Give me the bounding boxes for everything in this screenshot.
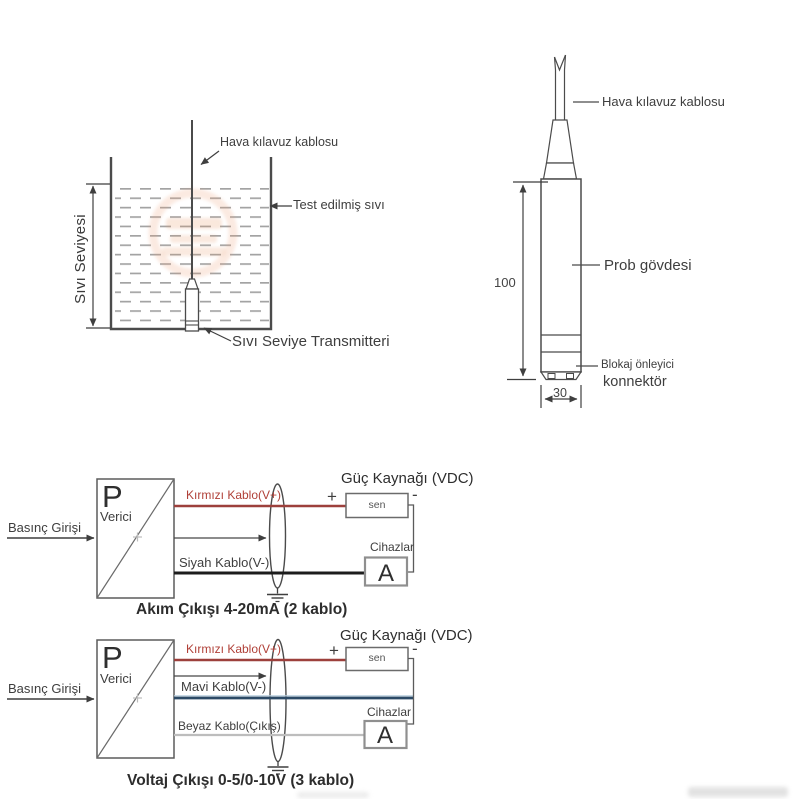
plus-terminal: + [329, 641, 339, 661]
red-wire-label: Kırmızı Kablo(V+) [186, 643, 281, 657]
probe-cable-fork [555, 55, 566, 120]
power-supply-text: sen [346, 652, 408, 664]
p-symbol: P [102, 481, 123, 512]
blue-wire-label: Mavi Kablo(V-) [181, 680, 266, 695]
connector-label-line2: konnektör [603, 374, 667, 391]
power-supply-title: Güç Kaynağı (VDC) [340, 627, 473, 644]
watermark-smudge [688, 787, 788, 797]
probe-body-label: Prob gövdesi [604, 257, 692, 274]
ammeter-symbol: A [364, 722, 406, 750]
probe-collar [544, 163, 577, 179]
black-wire-label: Siyah Kablo(V-) [179, 556, 269, 571]
p-symbol: P [102, 642, 123, 673]
level-dimension [86, 184, 110, 328]
cable-shield-ellipse [270, 640, 286, 762]
probe-body [541, 179, 581, 372]
probe-taper [547, 120, 574, 163]
tested-liquid-label: Test edilmiş sıvı [293, 198, 385, 213]
devices-label: Cihazlar [367, 706, 411, 720]
power-supply-text: sen [346, 499, 408, 511]
height-dim-value: 100 [494, 276, 516, 291]
width-dim-value: 30 [547, 386, 573, 400]
verici-label: Verici [100, 510, 132, 525]
air-cable-leader-arrow [201, 151, 219, 165]
minus-terminal: - [412, 485, 418, 505]
tank-air-cable-label: Hava kılavuz kablosu [220, 135, 338, 149]
pressure-input-label: Basınç Girişi [8, 521, 81, 536]
liquid-level-label: Sıvı Seviyesi [72, 203, 88, 315]
power-supply-title: Güç Kaynağı (VDC) [341, 470, 474, 487]
watermark-smudge [297, 792, 369, 798]
minus-terminal: - [412, 639, 418, 659]
probe-air-cable-label: Hava kılavuz kablosu [602, 95, 725, 110]
level-transmitter-label: Sıvı Seviye Transmitteri [232, 333, 390, 350]
plus-terminal: + [327, 487, 337, 507]
current-circuit-caption: Akım Çıkışı 4-20mA (2 kablo) [136, 601, 347, 619]
verici-label: Verici [100, 672, 132, 687]
product-diagram-image: Hava kılavuz kablosu Test edilmiş sıvı S… [0, 0, 799, 799]
ammeter-symbol: A [365, 560, 407, 588]
probe-bottom-cap [541, 372, 581, 380]
red-wire-label: Kırmızı Kablo(V+) [186, 489, 281, 503]
voltage-circuit-caption: Voltaj Çıkışı 0-5/0-10V (3 kablo) [127, 772, 354, 790]
white-wire-label: Beyaz Kablo(Çıkış) [178, 720, 281, 734]
ground-symbol [267, 588, 288, 602]
pressure-input-label: Basınç Girişi [8, 682, 81, 697]
tank-probe [186, 279, 199, 331]
devices-label: Cihazlar [370, 541, 414, 555]
connector-label-line1: Blokaj önleyici [601, 359, 674, 372]
probe-diagram [507, 55, 600, 408]
tank-diagram [86, 120, 292, 341]
